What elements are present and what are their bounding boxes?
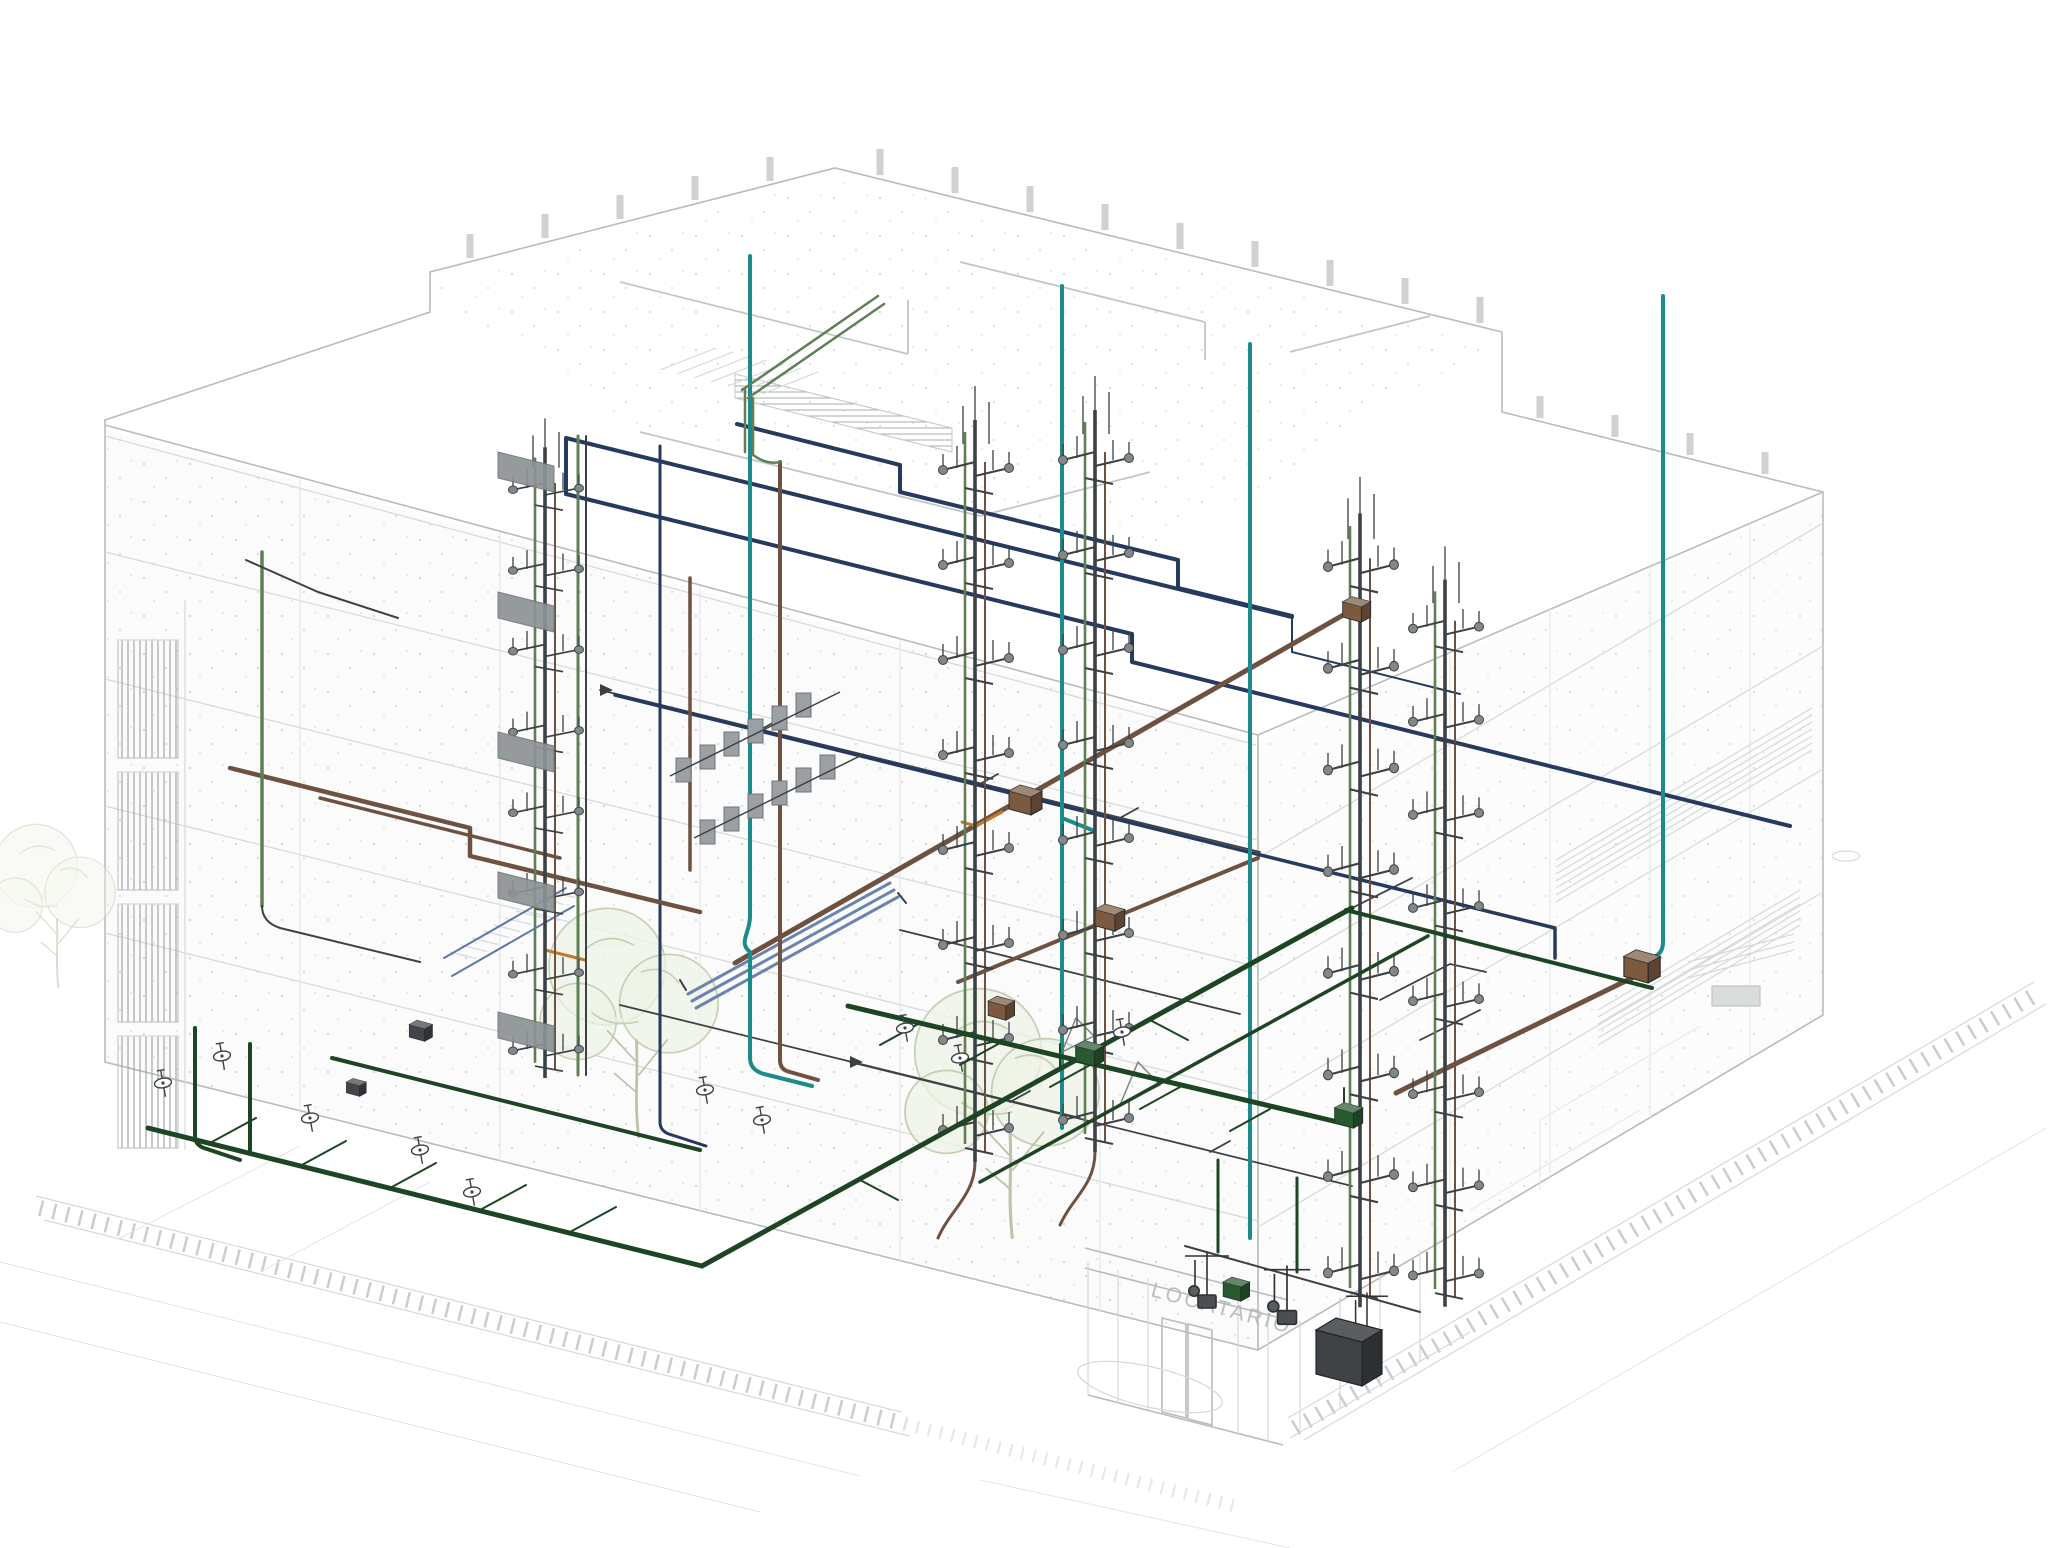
water-tank-box <box>1316 1318 1382 1386</box>
tree <box>0 824 115 988</box>
roof-plate-speckle <box>430 175 1495 560</box>
left-facade-balconies <box>118 600 185 1150</box>
parapet-posts-wing <box>1540 396 1765 474</box>
driveway-oval <box>1073 1351 1226 1423</box>
interior-shelving <box>1712 986 1760 1006</box>
bim-3d-viewport[interactable]: LOCATARIO <box>0 0 2048 1548</box>
ground-marking <box>1832 851 1860 861</box>
bim-screenshot: LOCATARIO <box>0 0 2048 1548</box>
curb-hatch-left <box>40 1208 905 1424</box>
